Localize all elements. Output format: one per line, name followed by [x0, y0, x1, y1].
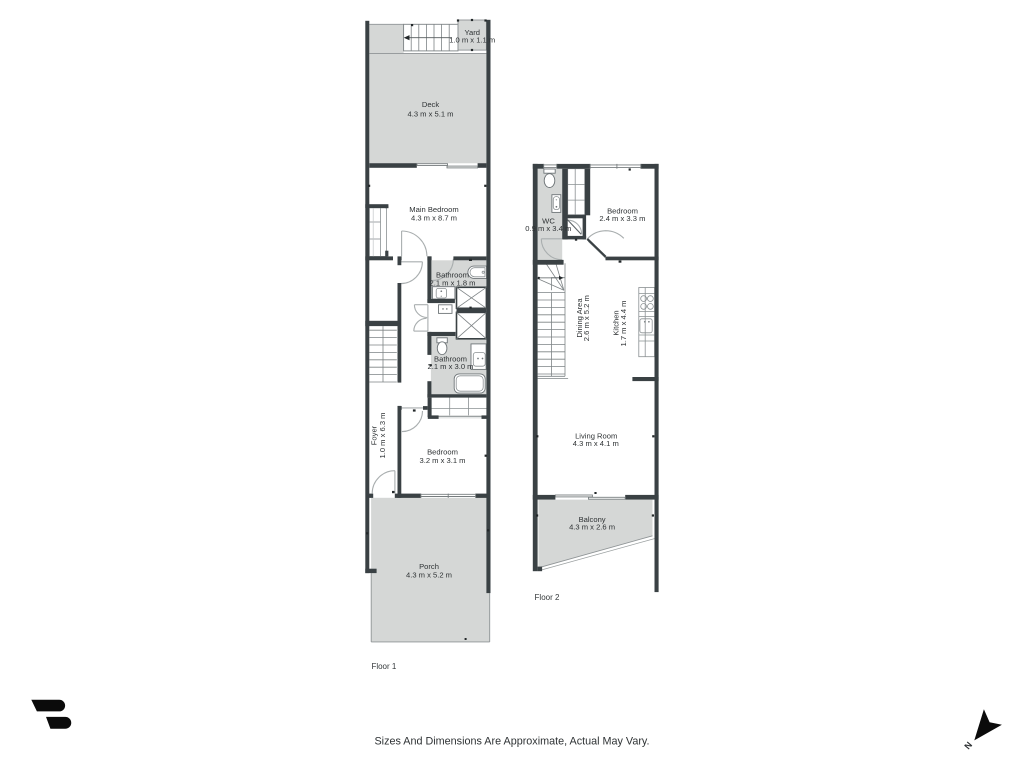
svg-text:2.1 m x 3.0 m: 2.1 m x 3.0 m — [427, 362, 473, 371]
svg-text:Sizes And Dimensions Are Appro: Sizes And Dimensions Are Approximate, Ac… — [374, 736, 649, 748]
svg-text:Floor 2: Floor 2 — [535, 593, 560, 602]
svg-text:4.3 m x 5.1 m: 4.3 m x 5.1 m — [407, 109, 453, 118]
svg-text:0.9 m x 3.4 m: 0.9 m x 3.4 m — [525, 224, 571, 233]
svg-text:4.3 m x 4.1 m: 4.3 m x 4.1 m — [573, 439, 619, 448]
svg-text:Deck: Deck — [422, 100, 440, 109]
svg-text:4.3 m x 2.6 m: 4.3 m x 2.6 m — [569, 522, 615, 531]
svg-text:1.0 m x 6.3 m: 1.0 m x 6.3 m — [378, 412, 387, 458]
svg-text:2.4 m x 3.3 m: 2.4 m x 3.3 m — [599, 214, 645, 223]
svg-text:4.3 m x 5.2 m: 4.3 m x 5.2 m — [406, 571, 452, 580]
svg-text:4.3 m x 8.7 m: 4.3 m x 8.7 m — [411, 214, 457, 223]
svg-text:1.0 m x 1.1 m: 1.0 m x 1.1 m — [449, 36, 495, 45]
svg-text:Floor 1: Floor 1 — [371, 662, 396, 671]
svg-text:2.6 m x 5.2 m: 2.6 m x 5.2 m — [582, 295, 591, 341]
svg-text:3.2 m x 3.1 m: 3.2 m x 3.1 m — [419, 456, 465, 465]
svg-text:2.1 m x 1.8 m: 2.1 m x 1.8 m — [429, 278, 475, 287]
svg-text:1.7 m x 4.4 m: 1.7 m x 4.4 m — [619, 300, 628, 346]
